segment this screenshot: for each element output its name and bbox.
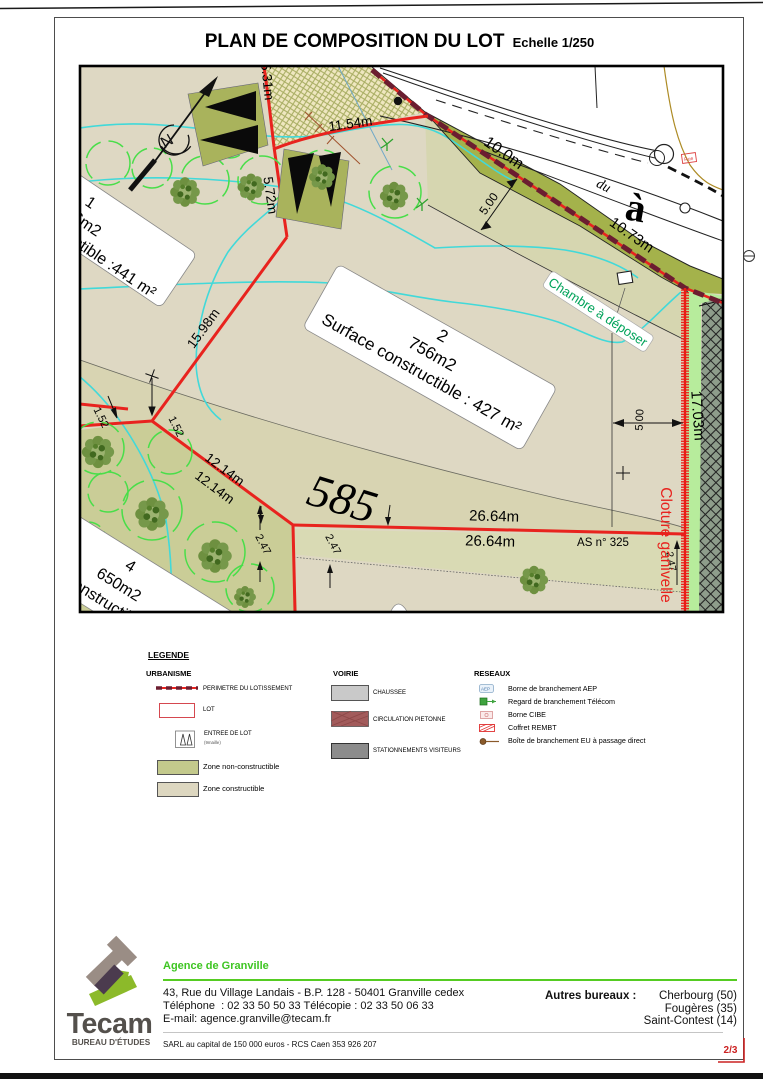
svg-text:Cloture ganivelle: Cloture ganivelle	[657, 487, 674, 602]
svg-text:5.00: 5.00	[633, 409, 646, 431]
svg-text:AS n° 325: AS n° 325	[577, 537, 629, 549]
svg-text:17.03m: 17.03m	[687, 390, 707, 441]
svg-text:AEP: AEP	[481, 687, 490, 692]
svg-text:26.64m: 26.64m	[465, 532, 515, 550]
svg-text:26.64m: 26.64m	[469, 507, 519, 525]
